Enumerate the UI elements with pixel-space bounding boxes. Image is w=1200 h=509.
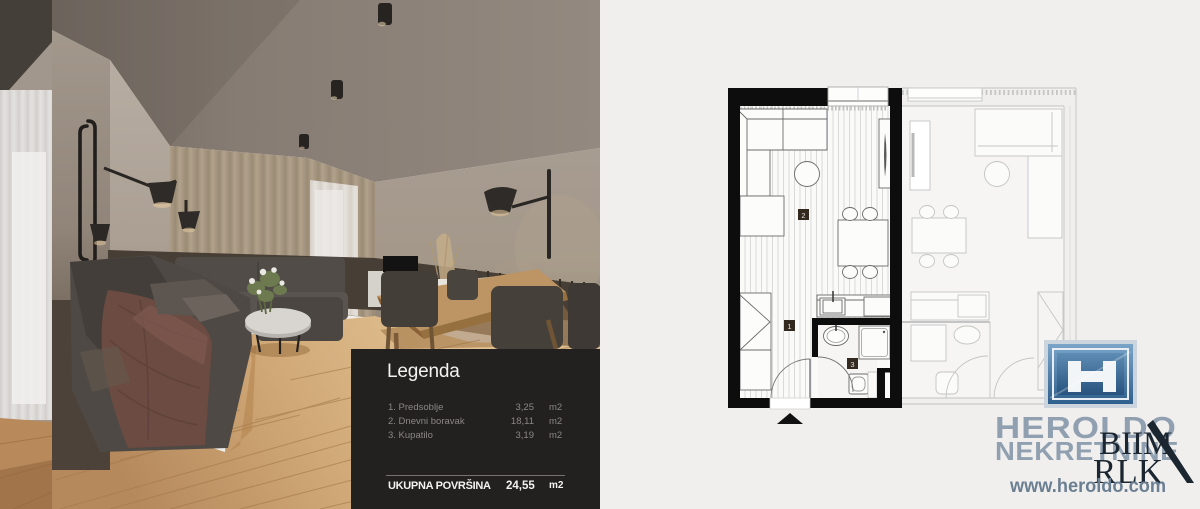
svg-text:1: 1 xyxy=(787,322,791,331)
svg-text:2: 2 xyxy=(801,211,805,220)
svg-text:www.heroldo.com: www.heroldo.com xyxy=(1009,476,1166,497)
svg-text:3: 3 xyxy=(850,360,854,369)
